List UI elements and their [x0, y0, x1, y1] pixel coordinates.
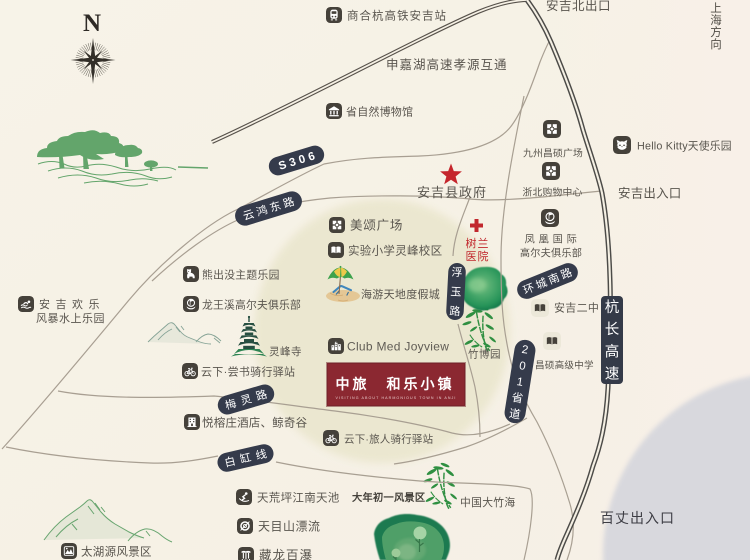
svg-text:浙北购物中心: 浙北购物中心 — [523, 186, 583, 199]
svg-text:云下·旅人骑行驿站: 云下·旅人骑行驿站 — [344, 433, 434, 446]
svg-text:美颂广场: 美颂广场 — [350, 219, 403, 233]
svg-text:灵峰寺: 灵峰寺 — [269, 346, 302, 358]
svg-text:Club Med Joyview: Club Med Joyview — [347, 340, 449, 354]
svg-text:凤 凰 国 际: 凤 凰 国 际 — [525, 234, 578, 246]
svg-text:申嘉湖高速孝源互通: 申嘉湖高速孝源互通 — [386, 57, 508, 72]
svg-text:百丈出入口: 百丈出入口 — [600, 510, 675, 526]
svg-text:安吉欢乐: 安吉欢乐 — [39, 297, 105, 311]
svg-text:龙王溪高尔夫俱乐部: 龙王溪高尔夫俱乐部 — [202, 298, 301, 312]
svg-text:熊出没主题乐园: 熊出没主题乐园 — [202, 268, 280, 282]
svg-text:悦榕庄酒店、鲸奇谷: 悦榕庄酒店、鲸奇谷 — [202, 416, 308, 430]
svg-text:上海方向: 上海方向 — [710, 2, 722, 51]
svg-text:商合杭高铁安吉站: 商合杭高铁安吉站 — [347, 9, 447, 23]
svg-text:竹博园: 竹博园 — [468, 348, 501, 361]
svg-text:安吉出入口: 安吉出入口 — [618, 186, 682, 201]
svg-text:九州昌硕广场: 九州昌硕广场 — [523, 147, 583, 160]
svg-text:昌硕高级中学: 昌硕高级中学 — [535, 360, 594, 372]
svg-text:VISITING ABOUT HARMONIOUS TOWN: VISITING ABOUT HARMONIOUS TOWN IN ANJI — [335, 396, 456, 400]
svg-text:中国大竹海: 中国大竹海 — [460, 495, 515, 509]
svg-text:N: N — [83, 10, 101, 37]
svg-text:安吉北出口: 安吉北出口 — [546, 0, 611, 13]
svg-text:海游天地度假城: 海游天地度假城 — [361, 287, 440, 301]
svg-text:省自然博物馆: 省自然博物馆 — [346, 105, 413, 119]
svg-text:风暴水上乐园: 风暴水上乐园 — [36, 312, 105, 325]
svg-text:云下·尝书骑行驿站: 云下·尝书骑行驿站 — [201, 365, 295, 379]
svg-text:医院: 医院 — [466, 249, 490, 263]
svg-text:藏龙百瀑: 藏龙百瀑 — [259, 549, 313, 560]
svg-text:安吉县政府: 安吉县政府 — [417, 185, 487, 200]
svg-text:Hello Kitty天使乐园: Hello Kitty天使乐园 — [637, 140, 732, 153]
svg-text:太湖源风景区: 太湖源风景区 — [81, 545, 152, 559]
svg-text:大年初一风景区: 大年初一风景区 — [352, 491, 425, 504]
svg-text:实验小学灵峰校区: 实验小学灵峰校区 — [348, 244, 442, 258]
svg-text:树兰: 树兰 — [466, 236, 490, 250]
svg-text:安吉二中: 安吉二中 — [554, 301, 599, 315]
svg-text:天荒坪江南天池: 天荒坪江南天池 — [257, 491, 340, 505]
svg-text:中旅 和乐小镇: 中旅 和乐小镇 — [336, 376, 455, 392]
svg-text:天目山漂流: 天目山漂流 — [258, 520, 321, 534]
svg-text:高尔夫俱乐部: 高尔夫俱乐部 — [520, 247, 582, 260]
